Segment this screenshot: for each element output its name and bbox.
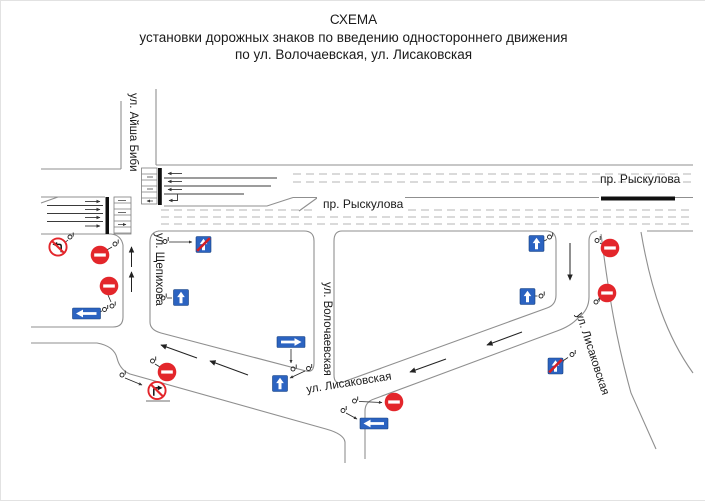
sign-post-marker <box>594 298 599 305</box>
street-label-aisha-bibi: ул. Айша Биби <box>127 93 139 172</box>
sign-post-marker <box>120 371 125 378</box>
street-label-ryskulova-center: пр. Рыскулова <box>323 197 404 211</box>
street-label-lisakovskaya-bottom: ул. Лисаковская <box>306 371 393 396</box>
one-way-exit-left-sign <box>73 308 101 319</box>
one-way-road-sign <box>520 289 535 305</box>
one-way-road-sign <box>273 376 288 392</box>
no-entry-sign <box>100 277 119 296</box>
no-entry-sign <box>598 284 617 303</box>
end-of-one-way-road-sign <box>548 358 563 374</box>
one-way-road-sign <box>529 236 544 252</box>
street-label-shchepikhova: ул. Щепихова <box>153 233 165 306</box>
no-entry-sign <box>385 393 404 412</box>
street-label-lisakovskaya-right: ул. Лисаковская <box>573 311 611 396</box>
one-way-exit-right-sign <box>277 337 305 348</box>
scheme-drawing: пр. Рыскулова пр. Рыскулова ул. Айша Биб… <box>1 1 705 500</box>
crosswalk-ladders <box>114 168 157 234</box>
sign-post-marker <box>110 302 115 309</box>
no-entry-sign <box>601 239 620 258</box>
sign-post-marker <box>595 236 600 243</box>
sign-post-marker <box>570 350 575 357</box>
closed-section-bar <box>601 197 675 201</box>
no-entry-sign <box>158 363 177 382</box>
sign-post-marker <box>151 357 156 364</box>
lane-markings <box>47 174 277 227</box>
no-right-turn-sign <box>148 382 165 399</box>
sign-post-marker <box>103 305 108 312</box>
no-left-turn-sign <box>49 238 66 255</box>
direction-arrows <box>132 243 571 375</box>
sign-post-marker <box>548 233 553 240</box>
scheme-canvas: СХЕМА установки дорожных знаков по введе… <box>0 0 705 501</box>
sign-post-marker <box>539 292 544 299</box>
one-way-road-sign <box>174 290 189 306</box>
one-way-exit-left-sign <box>360 418 388 429</box>
sign-post-marker <box>307 364 312 371</box>
sign-post-marker <box>341 406 346 413</box>
street-label-ryskulova-right: пр. Рыскулова <box>600 172 681 186</box>
no-entry-sign <box>91 246 110 265</box>
end-of-one-way-road-sign <box>196 237 211 253</box>
sign-post-marker <box>353 397 358 404</box>
sign-post-marker <box>113 240 118 247</box>
street-label-volochaevskaya: ул. Волочаевская <box>321 282 333 376</box>
